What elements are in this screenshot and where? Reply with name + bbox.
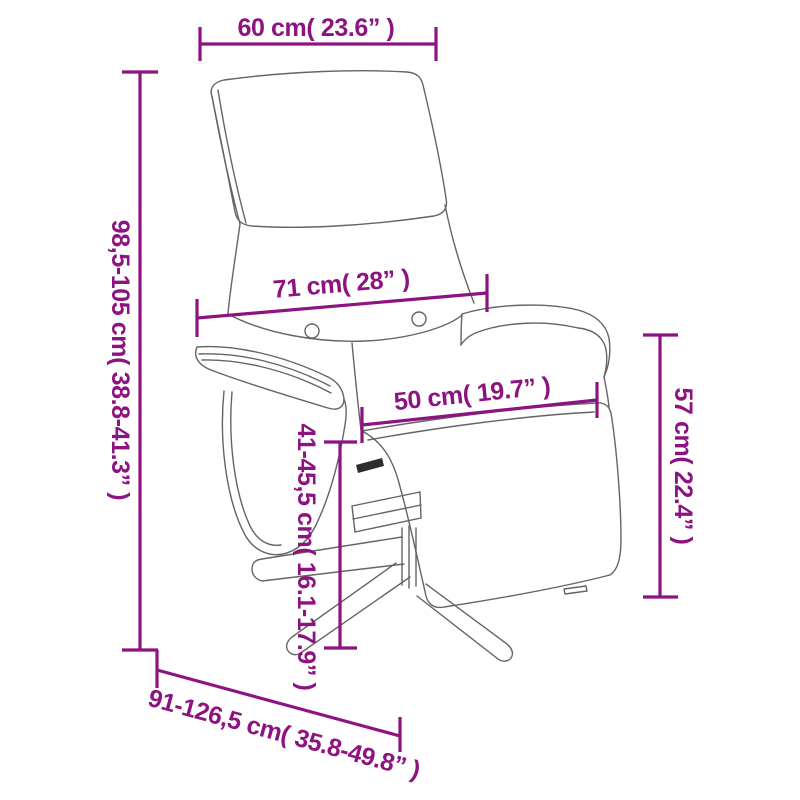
tufting-button-right <box>412 312 426 326</box>
left-side-panel-inner <box>231 392 281 545</box>
dim-headrest-width-label: 60 cm( 23.6” ) <box>238 14 395 42</box>
recliner-chair-illustration <box>196 71 621 661</box>
base-leg-front-right <box>417 584 512 661</box>
right-armrest-outer <box>462 305 610 377</box>
seat-footrest-outline <box>362 403 621 608</box>
headrest-outline <box>211 71 446 228</box>
left-armrest-seam1 <box>199 354 330 386</box>
right-armrest-inner <box>461 323 578 345</box>
seat-top-seam <box>368 412 594 440</box>
backrest-lower-left-edge <box>352 343 361 430</box>
backrest-left-edge <box>228 224 240 314</box>
dim-backrest-width-label: 71 cm( 28” ) <box>272 264 411 304</box>
base-leg-left <box>252 537 404 581</box>
backrest-right-edge <box>445 205 474 303</box>
dim-overall-height-label: 98,5-105 cm( 38.8-41.3” ) <box>106 220 134 501</box>
dim-armrest-height: 57 cm( 22.4” ) <box>643 335 697 597</box>
dim-overall-height: 98,5-105 cm( 38.8-41.3” ) <box>106 72 158 650</box>
tufting-button-left <box>305 324 319 338</box>
dim-overall-depth-label: 91-126,5 cm( 35.8-49.8” ) <box>145 684 423 785</box>
left-armrest-outline <box>196 347 344 410</box>
right-armrest-front-seam <box>604 377 609 407</box>
right-armrest-roll <box>578 328 607 377</box>
dim-seat-height-label: 41-45,5 cm( 16.1-17.9” ) <box>292 424 320 691</box>
dimension-diagram: 60 cm( 23.6” ) 98,5-105 cm( 38.8-41.3” )… <box>0 0 800 800</box>
headrest-side-seam <box>212 96 240 224</box>
mechanism-slat1 <box>352 492 420 506</box>
dim-seat-width: 50 cm( 19.7” ) <box>362 372 597 443</box>
dim-armrest-height-label: 57 cm( 22.4” ) <box>669 388 697 545</box>
headrest-side-seam-inner <box>218 90 246 223</box>
mechanism-wedge <box>356 458 384 473</box>
mechanism-slat-right-edge <box>420 492 421 518</box>
backrest-bottom-edge <box>228 314 462 341</box>
dim-headrest-width: 60 cm( 23.6” ) <box>200 14 436 61</box>
right-armrest-back-seam <box>461 314 462 345</box>
seat-underside-tab <box>564 586 587 594</box>
diagram-canvas: 60 cm( 23.6” ) 98,5-105 cm( 38.8-41.3” )… <box>0 0 800 800</box>
left-side-panel-outer <box>222 391 346 555</box>
dim-seat-height: 41-45,5 cm( 16.1-17.9” ) <box>292 424 357 691</box>
dim-seat-width-label: 50 cm( 19.7” ) <box>393 372 552 416</box>
dim-overall-depth: 91-126,5 cm( 35.8-49.8” ) <box>145 650 423 785</box>
mechanism-slat2 <box>353 505 421 519</box>
